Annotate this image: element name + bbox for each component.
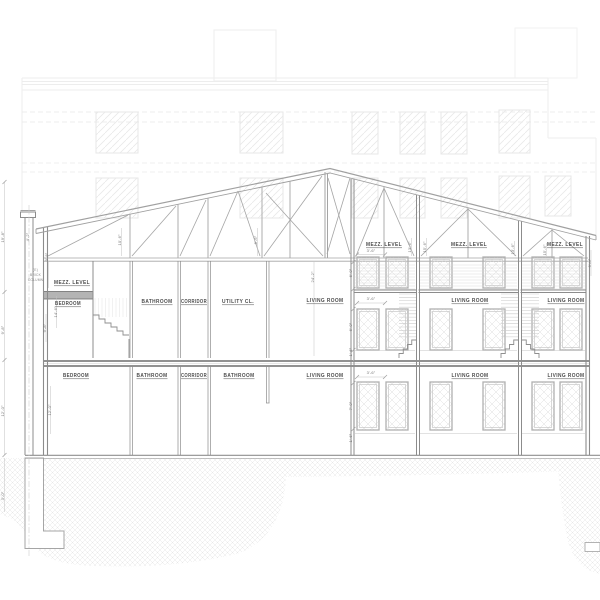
room-label: LIVING ROOM <box>307 373 344 379</box>
truss-dim-lines <box>122 228 592 276</box>
wall <box>208 261 211 358</box>
window <box>430 257 452 288</box>
earth-band <box>284 458 600 477</box>
dimension-text: 3'-6" <box>367 248 376 253</box>
background-window <box>545 176 571 216</box>
window <box>560 382 582 430</box>
dimension-text: 12'-0" <box>0 405 5 417</box>
room-label: BEDROOM <box>55 301 81 307</box>
wall <box>130 261 133 358</box>
room-label: BATHROOM <box>224 373 255 379</box>
earth-right <box>558 458 600 574</box>
roof-bulkhead <box>214 30 276 81</box>
window <box>357 309 379 350</box>
truss-diagonal <box>266 193 323 256</box>
dim-ticks <box>3 180 388 457</box>
dimension-text: 1'-6" <box>348 433 353 442</box>
background-building <box>22 28 596 237</box>
mezzanine-floor-line <box>354 290 417 293</box>
room-label: LIVING ROOM <box>307 298 344 304</box>
dimension-text: 1'-6" <box>348 347 353 356</box>
column-note-line: COLUMN <box>28 278 44 282</box>
mezzanine-slab <box>44 292 94 300</box>
ground-hatch <box>0 455 600 574</box>
wall <box>208 366 211 455</box>
mezzanine-floor-line <box>521 290 587 293</box>
room-label: CORRIDOR <box>181 299 207 305</box>
dimension-text: 6'-0" <box>348 268 353 277</box>
window <box>386 257 408 288</box>
wall <box>267 261 270 358</box>
dimension-text: 13'-6" <box>407 241 412 253</box>
mezzanine-floors <box>354 290 587 293</box>
window <box>483 257 505 288</box>
window <box>483 309 505 350</box>
dimension-text: 12'-0" <box>47 404 52 416</box>
wall <box>417 195 420 455</box>
window <box>560 309 582 350</box>
dimension-text: 6'-0" <box>348 322 353 331</box>
window <box>386 309 408 350</box>
truss-diagonal <box>48 215 128 256</box>
column-note: (E)BRICKCOLUMN <box>28 268 44 282</box>
room-label: LIVING ROOM <box>548 298 585 304</box>
wall <box>586 236 590 455</box>
room-label: BEDROOM <box>63 373 89 379</box>
dimension-text: 9'-8" <box>0 325 5 334</box>
window <box>560 257 582 288</box>
footing <box>585 543 600 552</box>
background-window <box>96 112 138 153</box>
column-cap <box>21 212 36 218</box>
wall <box>178 366 181 455</box>
window <box>532 309 554 350</box>
windows <box>355 257 585 434</box>
room-label: BATHROOM <box>142 299 173 305</box>
dimension-text: 9'-8" <box>42 323 47 332</box>
dimension-text: 9'-0" <box>587 258 592 267</box>
room-label: LIVING ROOM <box>548 373 585 379</box>
dimension-text: 24'-2" <box>310 271 315 283</box>
dimension-text: 3'-0" <box>0 491 5 500</box>
column-note-line: (E) <box>33 268 38 272</box>
window <box>357 257 379 288</box>
wall <box>130 366 133 455</box>
dimension-text: 15'-6" <box>542 244 547 256</box>
room-label: LIVING ROOM <box>452 298 489 304</box>
mezzanine-floor-line <box>419 290 519 293</box>
room-label: CORRIDOR <box>181 373 207 379</box>
room-label: MEZZ. LEVEL <box>54 280 90 286</box>
room-label: UTILITY CL. <box>222 299 254 305</box>
background-window <box>400 112 425 154</box>
window <box>483 382 505 430</box>
parapet-lines <box>22 78 548 90</box>
truss-diagonal <box>180 200 206 256</box>
window <box>357 382 379 430</box>
window <box>430 382 452 430</box>
window <box>532 257 554 288</box>
dimension-text: 10'-6" <box>117 234 122 246</box>
background-window <box>240 112 283 153</box>
section-drawing: MEZZ. LEVELBEDROOMBATHROOMCORRIDORUTILIT… <box>0 0 600 600</box>
background-window <box>352 112 378 154</box>
dimension-text: 3'-6" <box>367 370 376 375</box>
window <box>532 382 554 430</box>
column-note-line: BRICK <box>30 273 42 277</box>
room-label: MEZZ. LEVEL <box>451 242 487 248</box>
earth-left <box>0 458 296 566</box>
dimension-text: 13'-6" <box>510 243 515 255</box>
stair-steps <box>93 315 129 358</box>
window <box>430 309 452 350</box>
room-label: MEZZ. LEVEL <box>547 242 583 248</box>
truss-diagonal <box>132 206 176 256</box>
building-section-svg: MEZZ. LEVELBEDROOMBATHROOMCORRIDORUTILIT… <box>0 0 600 600</box>
dimension-text: 7'-0" <box>348 401 353 410</box>
background-window <box>400 178 425 218</box>
wall <box>178 261 181 358</box>
dimension-text: 3'-6" <box>367 296 376 301</box>
truss-diagonal <box>210 191 238 256</box>
dimension-text: 14'-6" <box>53 306 58 318</box>
dimension-text: 8'-6" <box>253 235 258 244</box>
background-floor-dashed <box>22 163 596 172</box>
room-label: BATHROOM <box>137 373 168 379</box>
window <box>386 382 408 430</box>
dimension-text: 4'-2" <box>25 232 30 241</box>
truss-bottom-chord <box>44 258 588 261</box>
wall <box>519 221 522 455</box>
roof-bulkhead <box>515 28 577 78</box>
dimension-text: 15'-6" <box>422 241 427 253</box>
wall <box>267 366 270 403</box>
room-label: LIVING ROOM <box>452 373 489 379</box>
background-window <box>499 110 530 153</box>
truss-peak-post <box>325 172 328 258</box>
background-window <box>441 112 467 154</box>
dimension-text: 19'-8" <box>0 231 5 243</box>
dimension-text: 3'-8" <box>44 252 49 261</box>
